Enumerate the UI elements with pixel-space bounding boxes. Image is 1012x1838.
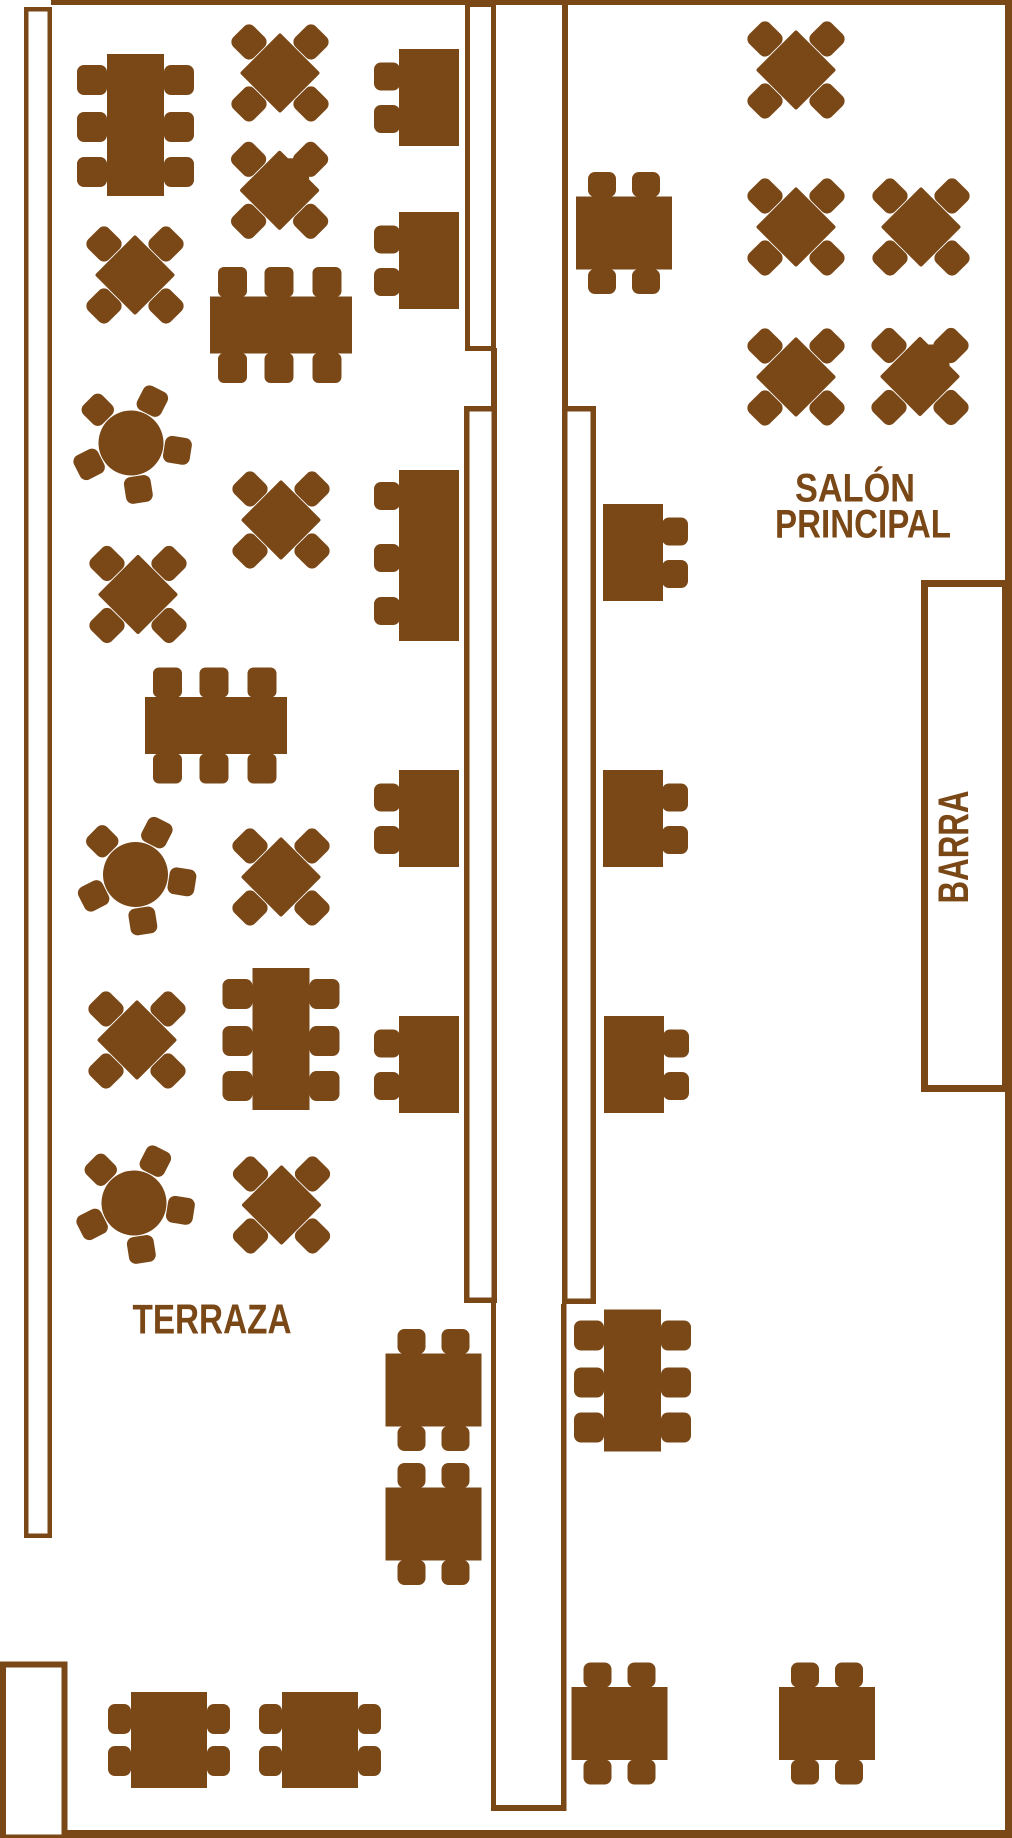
svg-text:TERRAZA: TERRAZA [133, 1296, 292, 1343]
svg-text:PRINCIPAL: PRINCIPAL [775, 503, 951, 547]
svg-text:BARRA: BARRA [930, 791, 978, 904]
